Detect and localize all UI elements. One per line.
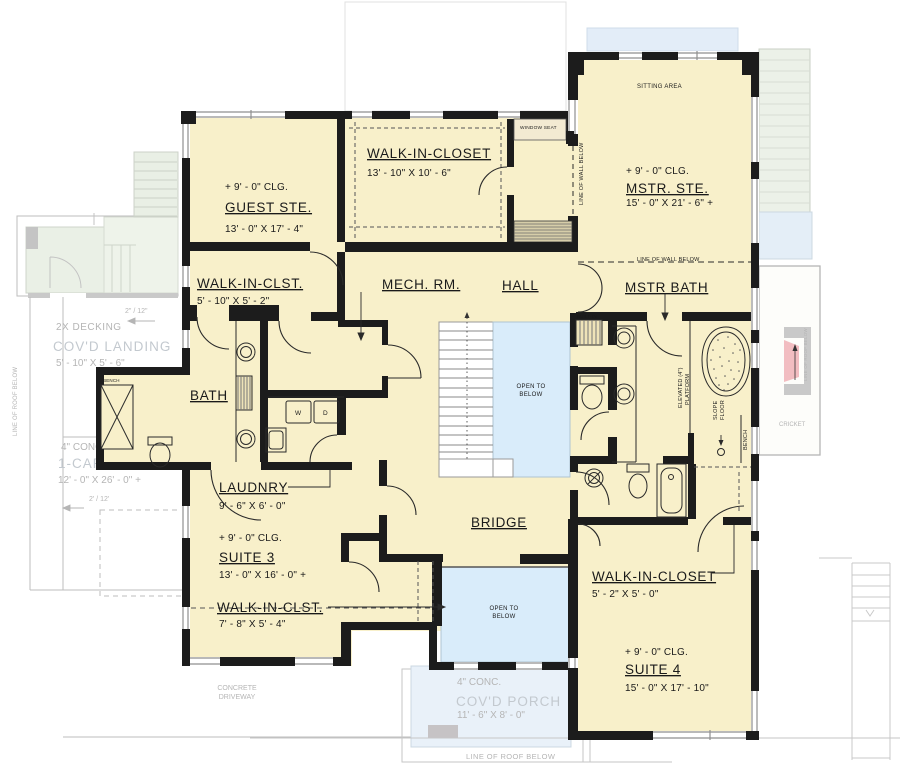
- svg-text:5' - 10" X 5' - 6": 5' - 10" X 5' - 6": [56, 358, 125, 369]
- svg-text:15' - 0" X 17' - 10": 15' - 0" X 17' - 10": [625, 683, 709, 694]
- svg-text:HALL: HALL: [502, 278, 539, 293]
- svg-text:COV'D PORCH: COV'D PORCH: [456, 694, 561, 709]
- svg-text:MSTR BATH: MSTR BATH: [625, 280, 708, 295]
- svg-text:WALK-IN-CLST.: WALK-IN-CLST.: [217, 600, 323, 615]
- svg-text:WALK-IN-CLST.: WALK-IN-CLST.: [197, 276, 303, 291]
- svg-text:LINE OF ROOF BELOW: LINE OF ROOF BELOW: [803, 328, 808, 381]
- svg-text:SLOPE: SLOPE: [713, 401, 719, 420]
- svg-text:+ 9' - 0" CLG.: + 9' - 0" CLG.: [225, 182, 288, 193]
- svg-text:OPEN TO: OPEN TO: [517, 384, 546, 390]
- svg-text:BRIDGE: BRIDGE: [471, 515, 527, 530]
- svg-text:MECH. RM.: MECH. RM.: [382, 277, 460, 292]
- svg-text:2" / 12": 2" / 12": [125, 308, 148, 315]
- svg-text:LINE OF ROOF BELOW: LINE OF ROOF BELOW: [466, 752, 556, 761]
- svg-text:9' - 6" X 6' - 0": 9' - 6" X 6' - 0": [219, 501, 286, 512]
- svg-text:SITTING AREA: SITTING AREA: [637, 84, 682, 90]
- svg-text:BUILT-IN: BUILT-IN: [577, 314, 597, 319]
- svg-text:ELEVATED (4"): ELEVATED (4"): [678, 367, 684, 408]
- svg-text:12' - 0" X 26' - 0" +: 12' - 0" X 26' - 0" +: [58, 475, 141, 486]
- svg-text:D: D: [323, 410, 328, 417]
- svg-text:BENCH: BENCH: [103, 378, 120, 383]
- svg-text:LAUDNRY: LAUDNRY: [219, 480, 288, 495]
- svg-text:+ 9' - 0" CLG.: + 9' - 0" CLG.: [219, 533, 282, 544]
- svg-text:13' - 0" X 16' - 0" +: 13' - 0" X 16' - 0" +: [219, 570, 306, 581]
- svg-text:COV'D LANDING: COV'D LANDING: [53, 339, 171, 354]
- svg-text:MSTR. STE.: MSTR. STE.: [626, 181, 709, 196]
- svg-text:BELOW: BELOW: [519, 392, 542, 398]
- svg-text:4" CONC.: 4" CONC.: [457, 677, 501, 688]
- svg-text:BENCH: BENCH: [743, 430, 749, 450]
- svg-text:WINDOW SEAT: WINDOW SEAT: [520, 125, 557, 131]
- svg-text:W: W: [295, 410, 302, 417]
- svg-text:SUITE 3: SUITE 3: [219, 550, 275, 565]
- svg-text:OPEN TO: OPEN TO: [490, 606, 519, 612]
- svg-text:LINE OF WALL BELOW: LINE OF WALL BELOW: [637, 257, 700, 263]
- svg-text:FLOOR: FLOOR: [720, 400, 726, 420]
- svg-text:CONCRETE: CONCRETE: [217, 685, 257, 692]
- svg-text:2' / 12': 2' / 12': [89, 496, 109, 503]
- svg-text:+ 9' - 0" CLG.: + 9' - 0" CLG.: [626, 166, 689, 177]
- svg-text:GUEST STE.: GUEST STE.: [225, 200, 312, 215]
- svg-text:SUITE 4: SUITE 4: [625, 662, 681, 677]
- svg-text:5' - 10" X 5' - 2": 5' - 10" X 5' - 2": [197, 296, 270, 307]
- svg-text:11' - 6" X 8' - 0": 11' - 6" X 8' - 0": [457, 710, 525, 721]
- svg-text:5' - 2" X 5' - 0": 5' - 2" X 5' - 0": [592, 589, 659, 600]
- svg-text:7' - 8" X 5' - 4": 7' - 8" X 5' - 4": [219, 619, 286, 630]
- svg-text:LINE OF WALL BELOW: LINE OF WALL BELOW: [579, 142, 585, 205]
- svg-text:13' - 10" X 10' - 6": 13' - 10" X 10' - 6": [367, 168, 451, 179]
- svg-text:WALK-IN-CLOSET: WALK-IN-CLOSET: [367, 146, 491, 161]
- svg-text:CRICKET: CRICKET: [779, 422, 806, 428]
- svg-text:15' - 0" X 21' - 6" +: 15' - 0" X 21' - 6" +: [626, 198, 713, 209]
- svg-text:WALK-IN-CLOSET: WALK-IN-CLOSET: [592, 569, 716, 584]
- svg-text:BELOW: BELOW: [492, 614, 515, 620]
- svg-text:+ 9' - 0" CLG.: + 9' - 0" CLG.: [625, 647, 688, 658]
- svg-text:BATH: BATH: [190, 388, 228, 403]
- svg-text:PLATFORM: PLATFORM: [685, 374, 691, 405]
- svg-text:LINE OF ROOF BELOW: LINE OF ROOF BELOW: [13, 367, 19, 436]
- svg-text:DRIVEWAY: DRIVEWAY: [219, 694, 256, 701]
- svg-text:2X DECKING: 2X DECKING: [56, 322, 122, 333]
- svg-text:13' - 0" X 17' - 4": 13' - 0" X 17' - 4": [225, 224, 303, 235]
